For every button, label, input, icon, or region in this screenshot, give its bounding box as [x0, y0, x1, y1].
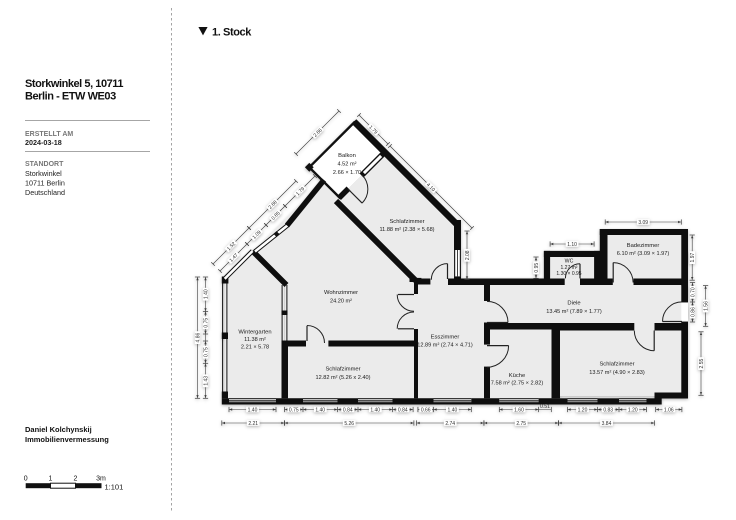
svg-text:1: 1: [49, 476, 53, 483]
svg-text:1.40: 1.40: [203, 289, 209, 299]
svg-text:1.40: 1.40: [248, 407, 258, 413]
svg-text:1. Stock: 1. Stock: [212, 27, 252, 39]
svg-text:1.56: 1.56: [703, 301, 709, 311]
svg-text:12.89 m² (2.74 × 4.71): 12.89 m² (2.74 × 4.71): [417, 343, 473, 349]
svg-text:24.20 m²: 24.20 m²: [330, 299, 352, 305]
svg-text:Immobilienvermessung: Immobilienvermessung: [25, 435, 109, 444]
svg-text:Berlin - ETW WE03: Berlin - ETW WE03: [25, 91, 116, 103]
svg-text:0.75: 0.75: [203, 318, 209, 328]
svg-text:11.88 m² (2.38 × 5.68): 11.88 m² (2.38 × 5.68): [379, 227, 434, 233]
svg-text:0.84: 0.84: [398, 407, 408, 413]
svg-text:2.55: 2.55: [699, 359, 705, 369]
svg-text:1.06: 1.06: [664, 407, 674, 413]
svg-text:Schlafzimmer: Schlafzimmer: [599, 362, 634, 368]
svg-text:2.08: 2.08: [465, 250, 471, 260]
svg-text:0.51: 0.51: [540, 404, 550, 410]
svg-text:6.10 m² (3.09 × 1.97): 6.10 m² (3.09 × 1.97): [617, 251, 670, 257]
svg-text:Schlafzimmer: Schlafzimmer: [325, 367, 360, 373]
svg-text:WC: WC: [565, 259, 574, 265]
svg-text:5.26: 5.26: [344, 421, 354, 427]
svg-text:0.75: 0.75: [203, 347, 209, 357]
svg-text:2.21: 2.21: [248, 421, 258, 427]
svg-text:4.86: 4.86: [195, 333, 201, 343]
svg-text:2: 2: [74, 476, 78, 483]
svg-text:Schlafzimmer: Schlafzimmer: [389, 219, 424, 225]
svg-text:Storkwinkel: Storkwinkel: [25, 169, 62, 178]
svg-text:1.60: 1.60: [514, 407, 524, 413]
svg-text:2.75: 2.75: [516, 421, 526, 427]
svg-text:13.45 m² (7.89 × 1.77): 13.45 m² (7.89 × 1.77): [546, 309, 602, 315]
svg-text:Deutschland: Deutschland: [25, 188, 65, 197]
svg-text:0.66: 0.66: [421, 407, 431, 413]
svg-text:11.38 m²: 11.38 m²: [244, 337, 266, 343]
svg-text:STANDORT: STANDORT: [25, 161, 64, 168]
svg-text:7.58 m² (2.75 × 2.82): 7.58 m² (2.75 × 2.82): [491, 381, 544, 387]
svg-text:1.40: 1.40: [448, 407, 458, 413]
svg-text:0.75: 0.75: [289, 407, 299, 413]
svg-text:ERSTELLT AM: ERSTELLT AM: [25, 131, 73, 138]
svg-text:2.74: 2.74: [445, 421, 455, 427]
svg-text:Wohnzimmer: Wohnzimmer: [324, 290, 358, 296]
svg-text:1.27 m²: 1.27 m²: [561, 265, 578, 271]
svg-text:0.86: 0.86: [690, 307, 696, 317]
svg-text:Küche: Küche: [509, 373, 525, 379]
svg-text:1.30 × 0.95: 1.30 × 0.95: [556, 271, 581, 277]
svg-text:0.83: 0.83: [603, 407, 613, 413]
svg-text:0.84: 0.84: [343, 407, 353, 413]
svg-text:10711 Berlin: 10711 Berlin: [25, 179, 65, 188]
svg-text:1.40: 1.40: [370, 407, 380, 413]
svg-text:1.97: 1.97: [690, 253, 696, 263]
svg-text:Esszimmer: Esszimmer: [431, 335, 460, 341]
svg-text:Diele: Diele: [567, 301, 580, 307]
svg-text:1.40: 1.40: [315, 407, 325, 413]
svg-text:0: 0: [24, 476, 28, 483]
svg-text:1.20: 1.20: [628, 407, 638, 413]
svg-text:1.43: 1.43: [203, 376, 209, 386]
svg-text:1.20: 1.20: [578, 407, 588, 413]
svg-text:0.70: 0.70: [690, 287, 696, 297]
svg-text:0.95: 0.95: [534, 263, 540, 273]
svg-text:12.82 m² (5.26 x 2.40): 12.82 m² (5.26 x 2.40): [315, 375, 370, 381]
svg-text:3m: 3m: [96, 476, 106, 483]
svg-text:Storkwinkel 5, 10711: Storkwinkel 5, 10711: [25, 78, 123, 90]
svg-text:3.84: 3.84: [602, 421, 612, 427]
svg-text:2024-03-18: 2024-03-18: [25, 138, 62, 147]
svg-text:Wintergarten: Wintergarten: [238, 330, 271, 336]
svg-text:Balkon: Balkon: [338, 153, 356, 159]
svg-text:2.66 × 1.70: 2.66 × 1.70: [333, 170, 361, 176]
svg-text:4.52 m²: 4.52 m²: [338, 162, 357, 168]
svg-text:Badezimmer: Badezimmer: [627, 243, 660, 249]
svg-text:1.10: 1.10: [567, 242, 577, 248]
svg-text:1:101: 1:101: [105, 483, 124, 492]
svg-text:3.09: 3.09: [638, 220, 648, 226]
svg-text:2.21 × 5.78: 2.21 × 5.78: [241, 345, 269, 351]
svg-text:Daniel Kolchynskij: Daniel Kolchynskij: [25, 425, 92, 434]
svg-text:13.57 m² (4.90 × 2.83): 13.57 m² (4.90 × 2.83): [589, 370, 645, 376]
